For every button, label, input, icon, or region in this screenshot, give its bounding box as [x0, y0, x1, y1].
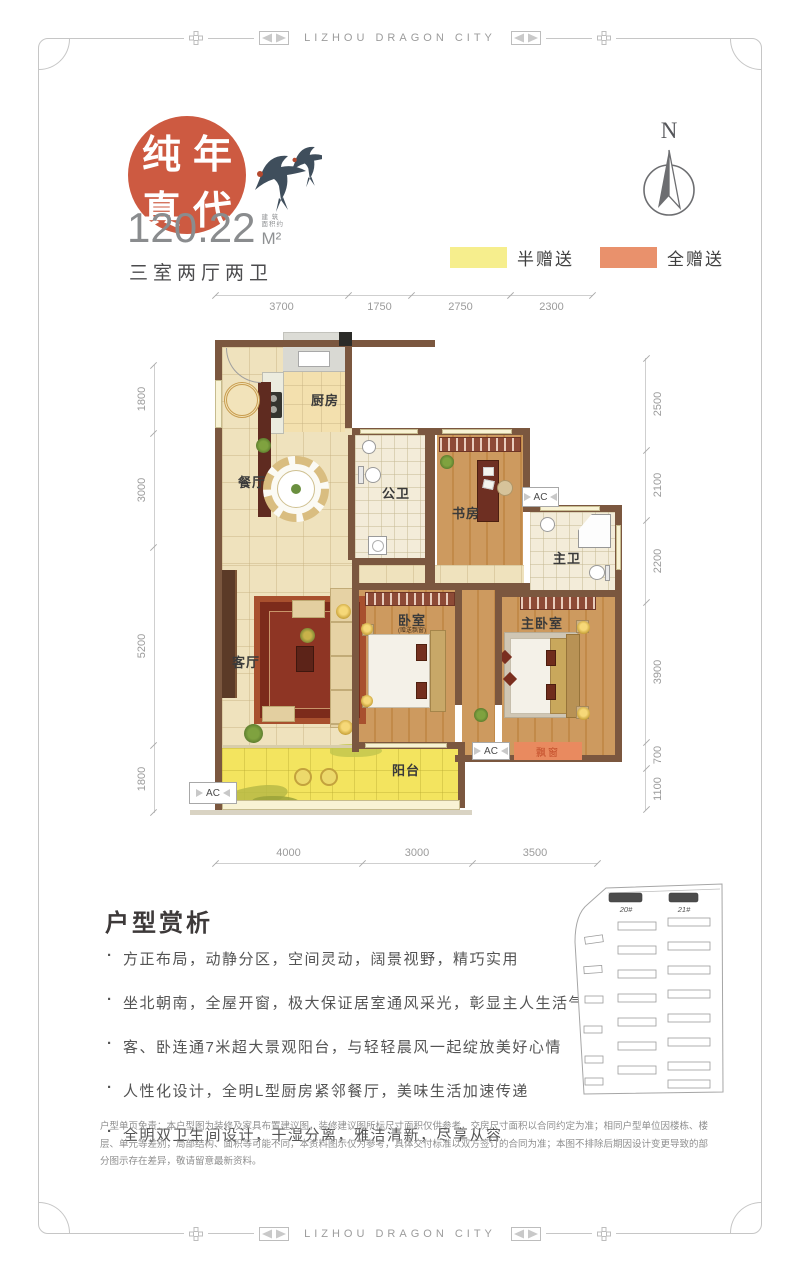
wall-segment — [215, 340, 435, 347]
dim-value: 1800 — [130, 745, 155, 813]
desk — [477, 460, 499, 522]
wall-segment — [458, 745, 465, 808]
room-label-study: 书房 — [452, 503, 480, 522]
room-label-public-bath: 公卫 — [382, 483, 410, 502]
dim-value: 4000 — [215, 840, 362, 864]
dim-value: 3000 — [130, 433, 155, 547]
analysis-bullet: 客、卧连通7米超大景观阳台，与轻轻晨风一起绽放美好心情 — [105, 1036, 602, 1057]
wall-segment — [495, 590, 502, 705]
compass-icon — [637, 144, 701, 218]
plant — [440, 455, 454, 469]
dim-value: 2300 — [510, 295, 593, 320]
ac-unit: AC — [472, 742, 510, 760]
round-rug — [224, 382, 260, 418]
floor-lamp — [338, 720, 353, 735]
room-label-kitchen: 厨房 — [311, 390, 339, 409]
wardrobe — [439, 437, 521, 452]
bedside-lamp — [361, 695, 373, 707]
analysis-bullet: 方正布局，动静分区，空间灵动，阔景视野，精巧实用 — [105, 948, 602, 969]
sink-icon — [540, 517, 555, 532]
flower-ornament-icon — [184, 27, 208, 49]
wardrobe — [365, 592, 455, 606]
bay-window-gift-zone: 飘窗 — [514, 742, 582, 760]
balcony-chair — [294, 768, 312, 786]
sink-icon — [362, 440, 376, 454]
room-label-dining: 餐厅 — [238, 472, 266, 491]
flue-column — [339, 332, 352, 346]
flower-ornament-icon — [592, 1223, 616, 1245]
site-plan-map: 20# 21# — [572, 880, 727, 1105]
half-gift-label: 半赠送 — [517, 245, 574, 270]
legend-half-gift: 半赠送 — [450, 245, 574, 270]
chaise-seat — [292, 600, 325, 618]
balcony-sill — [190, 810, 472, 815]
window — [215, 380, 222, 428]
floor-lamp — [336, 604, 351, 619]
desk-chair — [497, 480, 513, 496]
dimensions-top: 3700 1750 2750 2300 — [215, 295, 593, 320]
hall-floor — [359, 565, 524, 583]
wall-segment — [495, 590, 622, 597]
pillow — [546, 650, 556, 666]
pillow — [416, 644, 427, 661]
dim-value: 2200 — [645, 520, 670, 602]
corridor-floor — [462, 590, 495, 755]
dim-value: 1800 — [130, 365, 155, 433]
flower-ornament-icon — [184, 1223, 208, 1245]
full-gift-swatch — [600, 247, 657, 268]
dim-value: 5200 — [130, 547, 155, 745]
legend-full-gift: 全赠送 — [600, 245, 724, 270]
area-figure: 120.22 建 筑 面积约 M² — [127, 206, 284, 250]
window — [616, 525, 621, 570]
dim-value: 2750 — [411, 295, 510, 320]
dim-value: 3900 — [645, 602, 670, 742]
wall-segment — [455, 590, 462, 705]
brand-name: LIZHOU DRAGON CITY — [294, 1223, 506, 1245]
bottom-brand-band: LIZHOU DRAGON CITY — [0, 1223, 800, 1245]
dim-value: 1100 — [645, 768, 670, 810]
wall-segment — [425, 435, 435, 585]
dim-value: 2100 — [645, 450, 670, 520]
area-unit-block: 建 筑 面积约 M² — [261, 214, 284, 248]
plant — [256, 438, 271, 453]
building-label: 21# — [677, 905, 691, 914]
wall-segment — [348, 435, 355, 560]
analysis-bullet: 坐北朝南，全屋开窗，极大保证居室通风采光，彰显主人生活气度 — [105, 992, 602, 1013]
chaise-seat — [262, 706, 295, 722]
balcony-chair — [320, 768, 338, 786]
ac-unit: AC — [522, 487, 559, 507]
dim-value: 3700 — [215, 295, 348, 320]
room-note-bedroom: (赠送飘窗) — [398, 625, 426, 634]
brand-name: LIZHOU DRAGON CITY — [294, 27, 506, 49]
dining-table — [263, 456, 329, 522]
pillow — [416, 682, 427, 699]
area-value: 120.22 — [127, 206, 255, 250]
room-label-master-bath: 主卫 — [553, 548, 581, 567]
plant — [244, 724, 263, 743]
toilet-tank — [358, 466, 364, 484]
coffee-table — [296, 646, 314, 672]
room-label-balcony: 阳台 — [392, 760, 420, 779]
dim-value: 1750 — [348, 295, 411, 320]
toilet-icon — [589, 565, 605, 580]
bowtie-ornament-icon — [254, 27, 294, 49]
pillow — [546, 684, 556, 700]
wardrobe — [520, 596, 596, 610]
table-flowers — [300, 628, 315, 643]
toilet-icon — [365, 467, 381, 483]
north-compass: N — [636, 118, 702, 223]
half-gift-swatch — [450, 247, 507, 268]
wall-segment — [352, 558, 435, 565]
full-gift-label: 全赠送 — [667, 245, 724, 270]
window — [365, 743, 447, 748]
bedside-lamp — [577, 707, 590, 720]
flower-ornament-icon — [592, 27, 616, 49]
area-note: 面积约 — [261, 221, 284, 228]
balcony-railing — [222, 800, 460, 810]
layout-type: 三室两厅两卫 — [129, 258, 273, 285]
window — [442, 429, 512, 434]
area-note: 建 筑 — [261, 214, 284, 221]
bed-headboard — [430, 630, 446, 712]
bowtie-ornament-icon — [506, 1223, 546, 1245]
tv-cabinet — [222, 570, 237, 698]
washer-icon — [368, 536, 387, 555]
dimensions-left: 1800 3000 5200 1800 — [130, 365, 155, 813]
bowtie-ornament-icon — [254, 1223, 294, 1245]
building-label: 20# — [619, 905, 633, 914]
room-label-master-bedroom: 主卧室 — [521, 613, 563, 632]
balcony-threshold — [222, 745, 354, 748]
bowtie-ornament-icon — [506, 27, 546, 49]
bedside-lamp — [577, 621, 590, 634]
seal-char: 年 — [193, 124, 232, 180]
dim-value: 3000 — [362, 840, 472, 864]
kitchen-sink — [298, 351, 330, 367]
dimensions-right: 2500 2100 2200 3900 700 1100 — [645, 358, 670, 810]
wall-segment — [352, 583, 530, 590]
north-label: N — [636, 118, 702, 144]
disclaimer-text: 户型单页免责：本户型图为装修及家具布置建议图，装修建议图所标尺寸面积仅供参考，交… — [100, 1118, 708, 1171]
dining-table-top — [277, 470, 315, 508]
plant — [474, 708, 488, 722]
floorplan-poster: LIZHOU DRAGON CITY 纯 年 真 代 120.22 — [0, 0, 800, 1272]
analysis-bullet: 人性化设计，全明L型厨房紧邻餐厅，美味生活加速传递 — [105, 1080, 602, 1101]
bedside-lamp — [361, 623, 373, 635]
area-unit: M² — [261, 230, 284, 248]
toilet-tank — [605, 565, 610, 581]
dim-value: 3500 — [472, 840, 598, 864]
wall-segment — [345, 340, 352, 428]
dimensions-bottom: 4000 3000 3500 — [215, 840, 598, 864]
room-label-living: 客厅 — [232, 652, 260, 671]
dim-value: 2500 — [645, 358, 670, 450]
window — [360, 429, 418, 434]
ac-unit: AC — [189, 782, 237, 804]
analysis-title: 户型赏析 — [105, 903, 213, 938]
top-brand-band: LIZHOU DRAGON CITY — [0, 27, 800, 49]
seal-char: 纯 — [142, 124, 181, 180]
